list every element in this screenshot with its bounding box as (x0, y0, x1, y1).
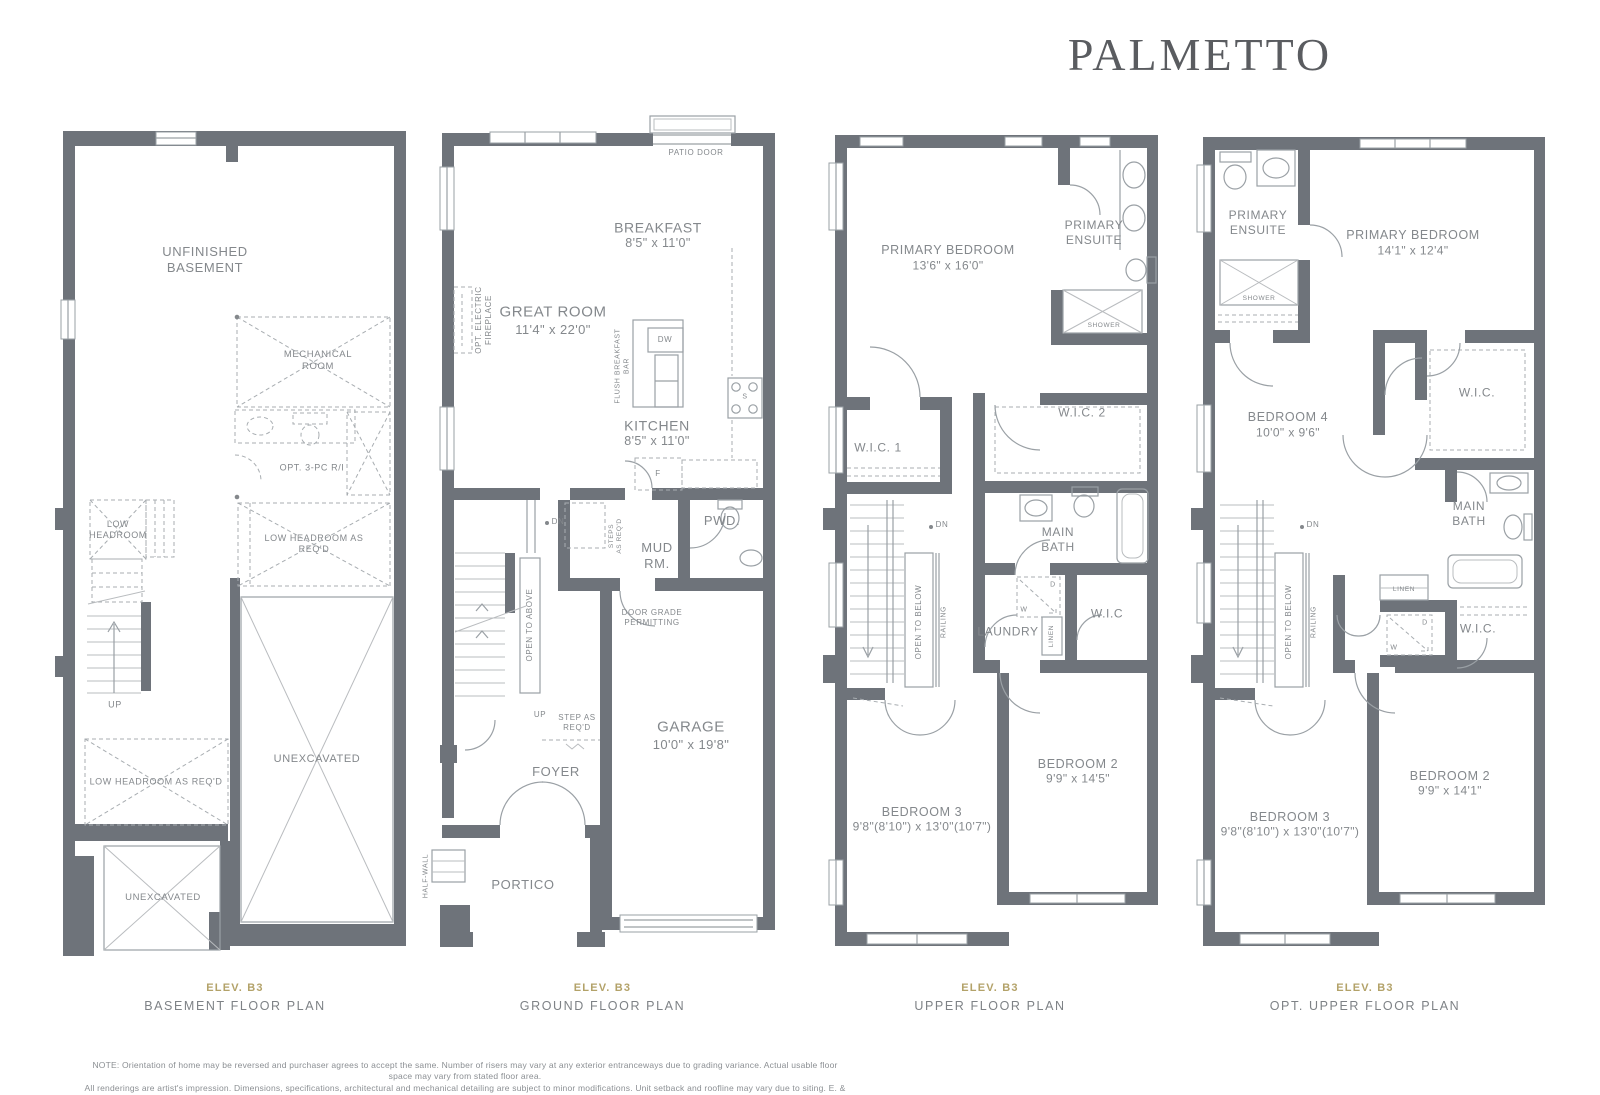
room-dims-bedroom3: 9'8"(8'10") x 13'0"(10'7") (853, 820, 992, 835)
bath-fixtures (1448, 473, 1532, 588)
room-dims-bedroom2: 9'9" x 14'1" (1418, 784, 1482, 799)
room-dims-bedroom4: 10'0" x 9'6" (1256, 426, 1320, 441)
elevation-label: ELEV. B3 (420, 982, 785, 994)
label-linen: LINEN (1048, 625, 1056, 647)
room-label-wic2: W.I.C. 2 (1058, 406, 1105, 421)
room-label-pwd: PWD. (704, 513, 740, 529)
opt-bath-rough-in (235, 410, 390, 499)
plan-name: OPT. UPPER FLOOR PLAN (1180, 999, 1550, 1013)
label-low-headroom-reqd-right: LOW HEADROOM AS REQ'D (264, 533, 365, 556)
elevation-label: ELEV. B3 (810, 982, 1170, 994)
room-label-main-bath: MAIN BATH (1041, 525, 1075, 555)
room-dims-kitchen: 8'5" x 11'0" (624, 434, 689, 450)
room-label-primary-bedroom: PRIMARY BEDROOM (881, 243, 1015, 259)
room-label-bedroom2: BEDROOM 2 (1038, 757, 1118, 773)
floorplan-sheet: PALMETTO (0, 0, 1600, 1095)
room-label-unfinished-basement: UNFINISHED BASEMENT (162, 244, 247, 277)
room-label-unexcavated-main: UNEXCAVATED (274, 753, 361, 767)
page-title: PALMETTO (1060, 28, 1340, 81)
label-dishwasher: DW (658, 335, 673, 345)
label-half-wall: HALF-WALL (423, 854, 432, 898)
room-label-mechanical-room: MECHANICAL ROOM (270, 349, 367, 373)
label-low-headroom-reqd-left: LOW HEADROOM AS REQ'D (90, 776, 223, 787)
disclaimer-line1: NOTE: Orientation of home may be reverse… (80, 1060, 850, 1083)
caption-ground: ELEV. B3 GROUND FLOOR PLAN (420, 982, 785, 1013)
mud-steps (565, 503, 605, 548)
powder-room-fixtures (718, 500, 762, 566)
room-label-wic-mid: W.I.C. (1460, 622, 1496, 637)
label-patio-door: PATIO DOOR (668, 148, 723, 158)
label-up: UP (108, 699, 122, 710)
label-dn: DN (1307, 520, 1320, 530)
caption-opt-upper: ELEV. B3 OPT. UPPER FLOOR PLAN (1180, 982, 1550, 1013)
label-low-headroom: LOW HEADROOM (89, 519, 147, 542)
label-railing: RAILING (941, 606, 950, 638)
stairs (1220, 500, 1309, 687)
room-label-wic: W.I.C (1091, 607, 1123, 622)
room-label-bedroom3: BEDROOM 3 (1250, 810, 1330, 826)
label-dn: DN (936, 520, 949, 530)
windows (61, 132, 196, 339)
label-shower: SHOWER (1088, 322, 1121, 330)
room-label-bedroom4: BEDROOM 4 (1248, 410, 1328, 426)
room-label-mud-rm: MUD RM. (641, 540, 672, 573)
room-dims-great-room: 11'4" x 22'0" (515, 322, 591, 338)
label-steps-as-reqd: STEPS AS REQ'D (608, 518, 624, 553)
label-up: UP (534, 710, 546, 720)
elevation-label: ELEV. B3 (55, 982, 415, 994)
opt-upper-floor-plan: PRIMARY ENSUITE SHOWER PRIMARY BEDROOM 1… (1180, 110, 1550, 960)
stairs (850, 500, 939, 687)
plan-name: GROUND FLOOR PLAN (420, 999, 785, 1013)
caption-basement: ELEV. B3 BASEMENT FLOOR PLAN (55, 982, 415, 1013)
basement-floor-plan: UNFINISHED BASEMENT MECHANICAL ROOM OPT.… (55, 110, 415, 960)
label-flush-breakfast-bar: FLUSH BREAKFAST BAR (614, 328, 632, 403)
room-dims-garage: 10'0" x 19'8" (653, 737, 730, 753)
room-label-bedroom2: BEDROOM 2 (1410, 769, 1490, 785)
room-dims-primary-bedroom: 13'6" x 16'0" (912, 259, 983, 274)
garage-door (620, 915, 757, 932)
room-label-bedroom3: BEDROOM 3 (882, 805, 962, 821)
label-shower: SHOWER (1243, 295, 1276, 303)
patio-door (650, 116, 735, 144)
stairs (87, 559, 145, 693)
room-label-wic1: W.I.C. 1 (854, 441, 901, 456)
room-label-wic-top: W.I.C. (1459, 386, 1495, 401)
elevation-label: ELEV. B3 (1180, 982, 1550, 994)
label-washer: W (1020, 607, 1027, 616)
bath-fixtures (1020, 487, 1148, 563)
room-label-kitchen: KITCHEN (624, 417, 690, 435)
disclaimer-note: NOTE: Orientation of home may be reverse… (80, 1060, 850, 1095)
ground-floor-plan: PATIO DOOR BREAKFAST 8'5" x 11'0" GREAT … (420, 108, 785, 960)
caption-upper: ELEV. B3 UPPER FLOOR PLAN (810, 982, 1170, 1013)
label-fridge: F (655, 469, 661, 479)
room-label-garage: GARAGE (657, 719, 725, 738)
room-label-unexcavated-front: UNEXCAVATED (125, 892, 201, 904)
disclaimer-line2: All renderings are artist's impression. … (80, 1083, 850, 1095)
room-label-foyer: FOYER (532, 764, 580, 780)
room-label-primary-ensuite: PRIMARY ENSUITE (1065, 218, 1124, 248)
label-opt-3pc-rough-in: OPT. 3-PC R/I (280, 462, 345, 473)
ground-plan-drawing (420, 108, 785, 960)
label-stove: S (742, 394, 747, 403)
room-dims-bedroom2: 9'9" x 14'5" (1046, 772, 1110, 787)
label-dryer: D (1422, 620, 1428, 629)
plan-name: BASEMENT FLOOR PLAN (55, 999, 415, 1013)
label-open-to-below: OPEN TO BELOW (914, 585, 924, 660)
label-door-grade-permitting: DOOR GRADE PERMITTING (622, 608, 683, 628)
label-linen: LINEN (1393, 586, 1415, 594)
room-label-portico: PORTICO (491, 877, 554, 893)
upper-floor-plan: PRIMARY BEDROOM 13'6" x 16'0" PRIMARY EN… (810, 110, 1170, 960)
label-step-as-reqd: STEP AS REQ'D (558, 713, 595, 733)
label-dn: DN (552, 517, 565, 527)
room-label-primary-bedroom: PRIMARY BEDROOM (1346, 228, 1480, 244)
room-label-laundry: LAUNDRY (977, 625, 1038, 640)
room-label-primary-ensuite: PRIMARY ENSUITE (1229, 208, 1288, 238)
room-label-great-room: GREAT ROOM (499, 304, 606, 323)
room-label-breakfast: BREAKFAST (614, 219, 702, 237)
room-label-main-bath: MAIN BATH (1452, 499, 1486, 529)
kitchen-fixtures (454, 248, 762, 490)
label-open-to-above: OPEN TO ABOVE (525, 589, 535, 662)
room-dims-breakfast: 8'5" x 11'0" (625, 236, 690, 252)
label-railing: RAILING (1311, 606, 1320, 638)
label-open-to-below: OPEN TO BELOW (1284, 585, 1294, 660)
room-dims-bedroom3: 9'8"(8'10") x 13'0"(10'7") (1221, 825, 1360, 840)
label-opt-electric-fireplace: OPT. ELECTRIC FIREPLACE (474, 286, 494, 353)
plan-name: UPPER FLOOR PLAN (810, 999, 1170, 1013)
room-dims-primary-bedroom: 14'1" x 12'4" (1377, 244, 1448, 259)
label-washer: W (1390, 645, 1397, 654)
label-dryer: D (1050, 582, 1056, 591)
